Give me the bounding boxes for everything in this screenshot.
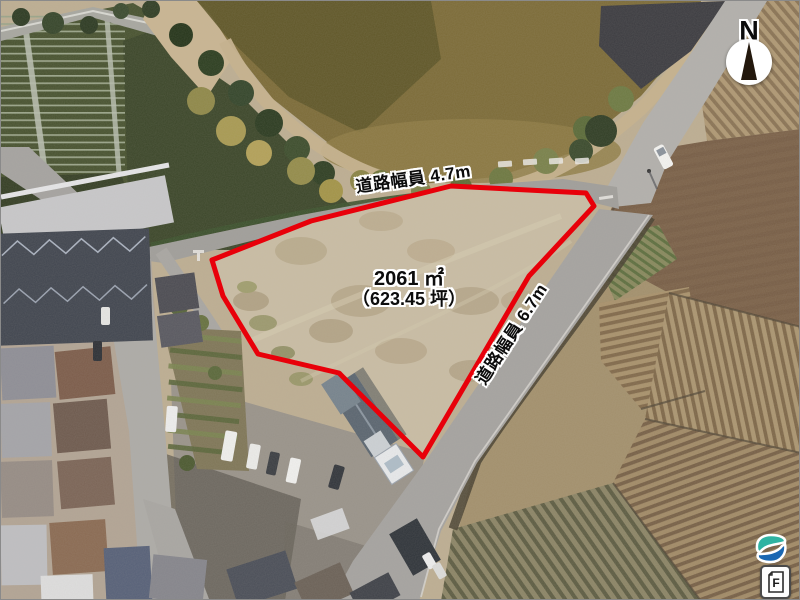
compass-needle xyxy=(741,42,757,80)
aerial-parcel-map: 道路幅員 4.7m 2061 ㎡ （623.45 坪） 道路幅員 6.7m N … xyxy=(0,0,800,600)
map-provider-logo-icon[interactable] xyxy=(751,531,791,567)
label-area-sqm: 2061 ㎡ xyxy=(352,268,466,290)
f-badge-letter: F xyxy=(772,576,779,590)
document-f-icon[interactable]: F xyxy=(760,565,791,599)
label-parcel-area: 2061 ㎡ （623.45 坪） xyxy=(352,268,466,310)
north-arrow-icon xyxy=(726,39,772,85)
label-area-tsubo: （623.45 坪） xyxy=(352,290,466,310)
